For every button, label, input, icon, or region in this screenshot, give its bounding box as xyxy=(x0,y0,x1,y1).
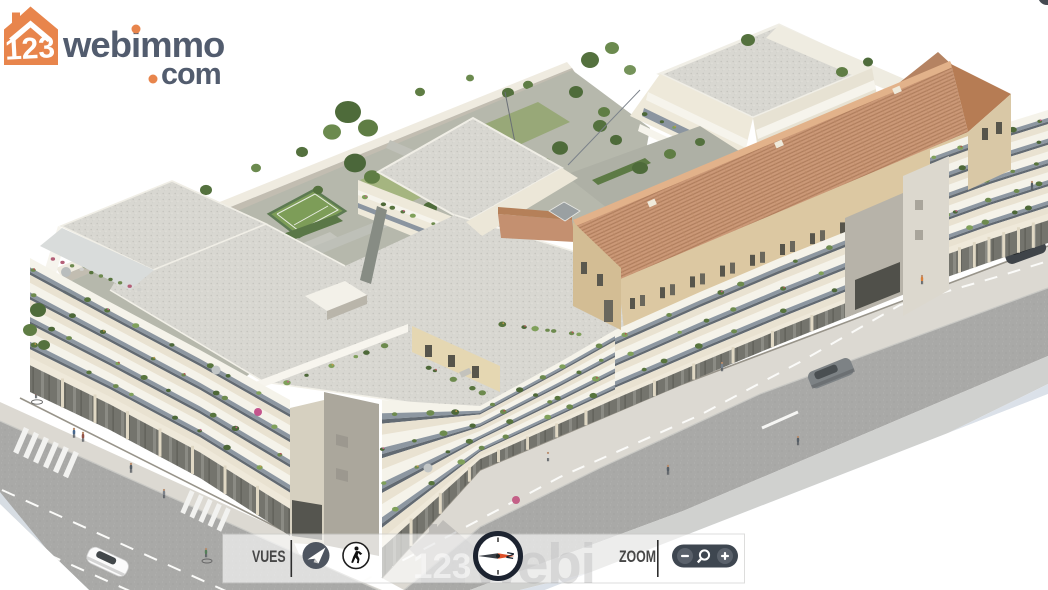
svg-text:com: com xyxy=(161,57,221,91)
svg-text:123: 123 xyxy=(4,31,56,67)
svg-text:VUES: VUES xyxy=(252,548,286,566)
svg-text:ZOOM: ZOOM xyxy=(619,548,656,566)
